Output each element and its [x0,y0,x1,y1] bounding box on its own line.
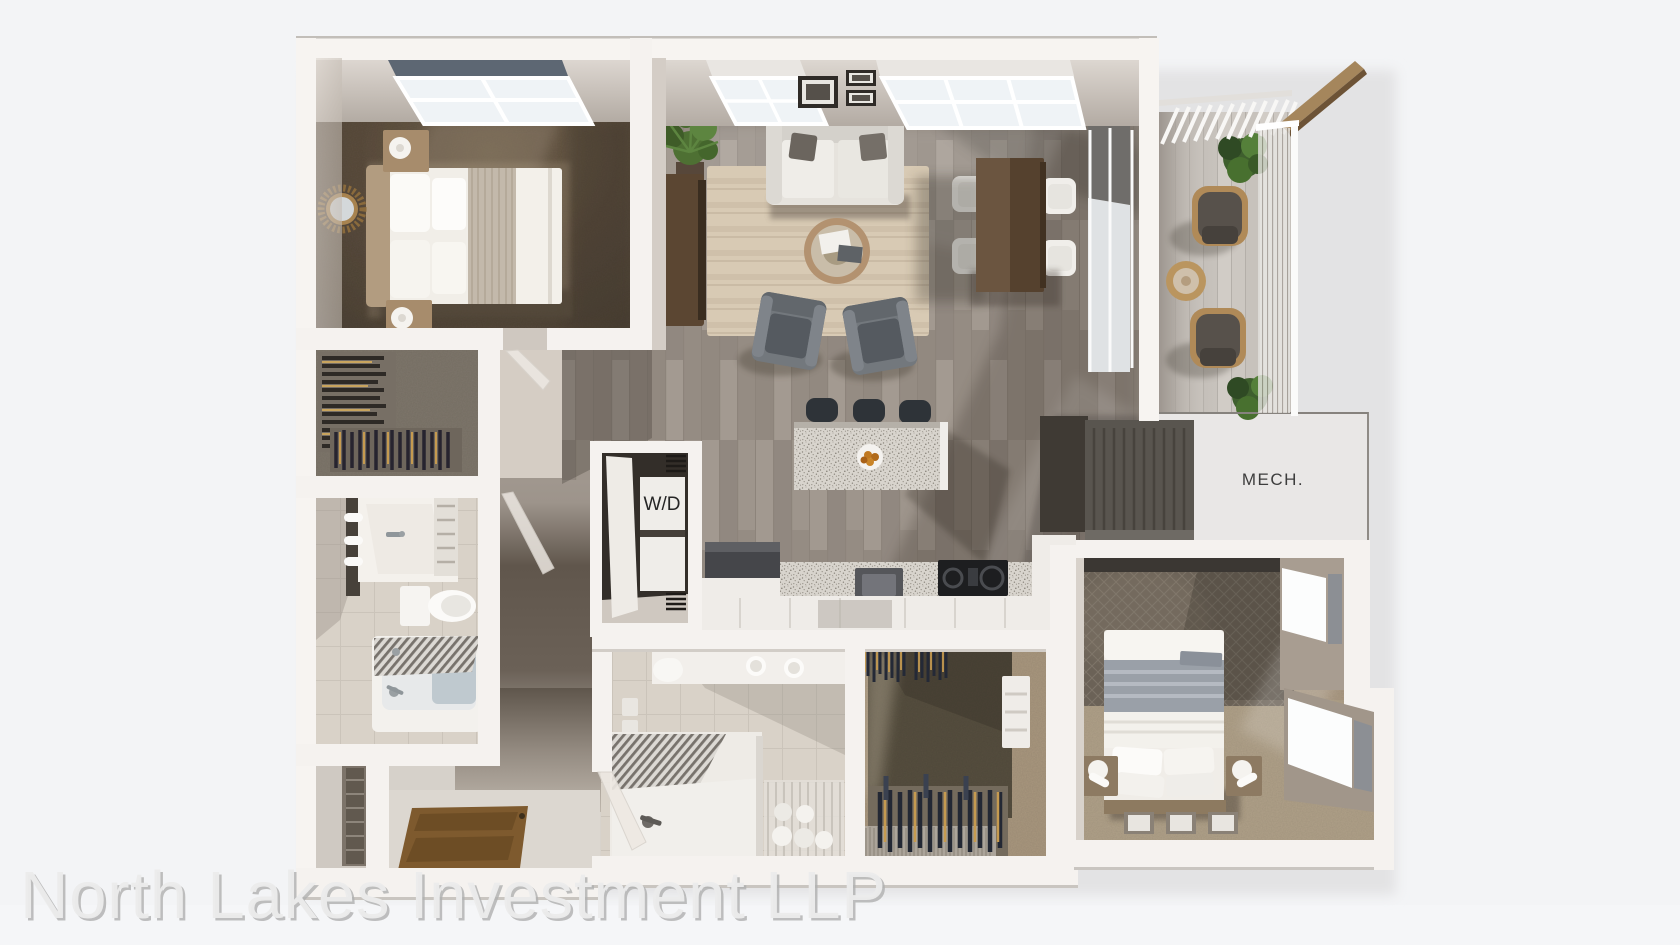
svg-text:W/D: W/D [644,494,681,515]
svg-text:MECH.: MECH. [1242,470,1304,489]
svg-text:North Lakes Investment LLP: North Lakes Investment LLP [20,858,886,933]
